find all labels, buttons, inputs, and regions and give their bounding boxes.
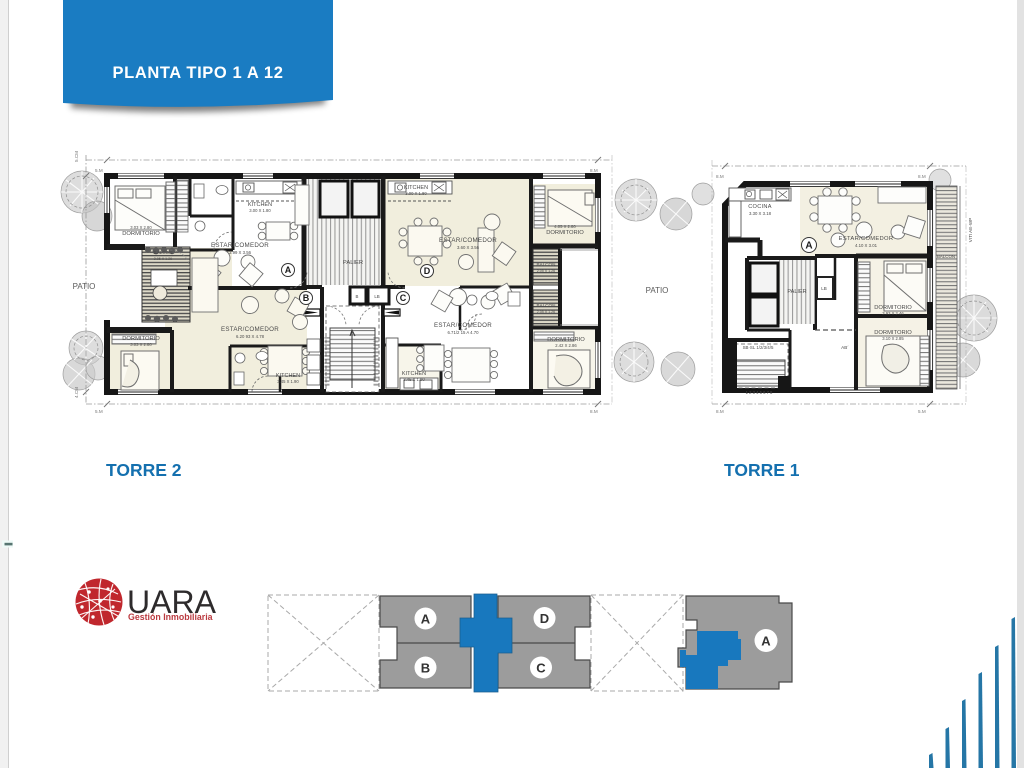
svg-text:2.42 X 2.86: 2.42 X 2.86: [555, 343, 577, 348]
svg-text:1 2 3 4 5 6 7 8: 1 2 3 4 5 6 7 8: [746, 390, 773, 395]
svg-text:BALCON: BALCON: [537, 303, 556, 308]
svg-text:5.M: 5.M: [95, 168, 103, 173]
svg-text:2.05 X 1.26: 2.05 X 1.26: [537, 269, 555, 273]
svg-text:5.CM: 5.CM: [74, 151, 79, 162]
svg-text:A: A: [805, 241, 812, 252]
svg-text:ESTAR/COMEDOR: ESTAR/COMEDOR: [439, 237, 497, 244]
svg-text:PALIER: PALIER: [787, 289, 806, 295]
svg-text:D: D: [424, 266, 431, 276]
svg-text:PATIO: PATIO: [73, 282, 96, 291]
svg-text:3.45 X 1.90: 3.45 X 1.90: [403, 377, 425, 382]
svg-text:5.M: 5.M: [95, 409, 103, 414]
svg-text:6.20 93 X 4.78: 6.20 93 X 4.78: [236, 334, 265, 339]
svg-text:A: A: [761, 634, 771, 649]
svg-text:3.00 X 1.80: 3.00 X 1.80: [405, 191, 427, 196]
svg-text:VITI AE-WP: VITI AE-WP: [968, 218, 973, 243]
svg-text:5.M: 5.M: [918, 409, 926, 414]
svg-text:4.10 X 3.01: 4.10 X 3.01: [855, 243, 878, 248]
svg-text:PATIO: PATIO: [646, 286, 669, 295]
svg-text:3.60 X 3.56: 3.60 X 3.56: [457, 245, 480, 250]
svg-text:6.71/2 15 A 4.70: 6.71/2 15 A 4.70: [447, 330, 479, 335]
svg-text:BALCON: BALCON: [937, 254, 955, 259]
svg-text:D: D: [540, 611, 549, 626]
svg-text:ESTAR/COMEDOR: ESTAR/COMEDOR: [211, 242, 269, 249]
svg-text:3.45 X 1.90: 3.45 X 1.90: [277, 379, 299, 384]
svg-text:BALCON: BALCON: [154, 250, 173, 255]
svg-text:8.M: 8.M: [716, 409, 724, 414]
svg-text:8.M: 8.M: [590, 409, 598, 414]
svg-text:DORMITORIO: DORMITORIO: [546, 230, 584, 236]
svg-text:8.M: 8.M: [590, 168, 598, 173]
svg-text:PALIER: PALIER: [343, 260, 363, 266]
svg-text:3.93 X 2.46: 3.93 X 2.46: [882, 311, 904, 316]
svg-text:3.30 X 3.18: 3.30 X 3.18: [749, 211, 772, 216]
svg-text:A: A: [285, 265, 292, 275]
svg-text:LB: LB: [821, 286, 827, 291]
svg-text:ESTAR/COMEDOR: ESTAR/COMEDOR: [221, 326, 279, 333]
svg-text:3.10 X 2.85: 3.10 X 2.85: [882, 336, 904, 341]
svg-text:A: A: [421, 612, 431, 627]
svg-text:8.M: 8.M: [918, 174, 926, 179]
svg-text:4.05 X 2.80: 4.05 X 2.80: [554, 224, 576, 229]
svg-text:C: C: [400, 293, 407, 303]
svg-text:3.99 X 3.56: 3.99 X 3.56: [229, 250, 252, 255]
svg-text:3.03 X 2.80: 3.03 X 2.80: [130, 342, 152, 347]
svg-text:DORMITORIO: DORMITORIO: [122, 231, 160, 237]
svg-text:3.03 X 2.80: 3.03 X 2.80: [130, 225, 152, 230]
svg-text:ESTAR/COMEDOR: ESTAR/COMEDOR: [434, 322, 492, 329]
svg-text:B: B: [303, 293, 310, 303]
svg-text:B: B: [421, 661, 430, 676]
svg-text:2.05 X 1.26: 2.05 X 1.26: [537, 310, 555, 314]
svg-text:COCINA: COCINA: [748, 204, 772, 210]
svg-text:BALCON: BALCON: [537, 262, 556, 267]
svg-text:ESTAR/COMEDOR: ESTAR/COMEDOR: [839, 236, 894, 242]
svg-text:4.CM: 4.CM: [74, 387, 79, 398]
svg-text:LB: LB: [374, 294, 379, 299]
svg-text:AB´: AB´: [841, 345, 849, 350]
svg-text:2.05 X 1.26: 2.05 X 1.26: [154, 257, 172, 261]
svg-text:SB·SL 1/2/3/4/5: SB·SL 1/2/3/4/5: [743, 345, 774, 350]
svg-text:B: B: [356, 294, 359, 299]
svg-text:8.M: 8.M: [716, 174, 724, 179]
svg-text:C: C: [536, 661, 546, 676]
svg-text:3.00 X 1.80: 3.00 X 1.80: [249, 208, 271, 213]
